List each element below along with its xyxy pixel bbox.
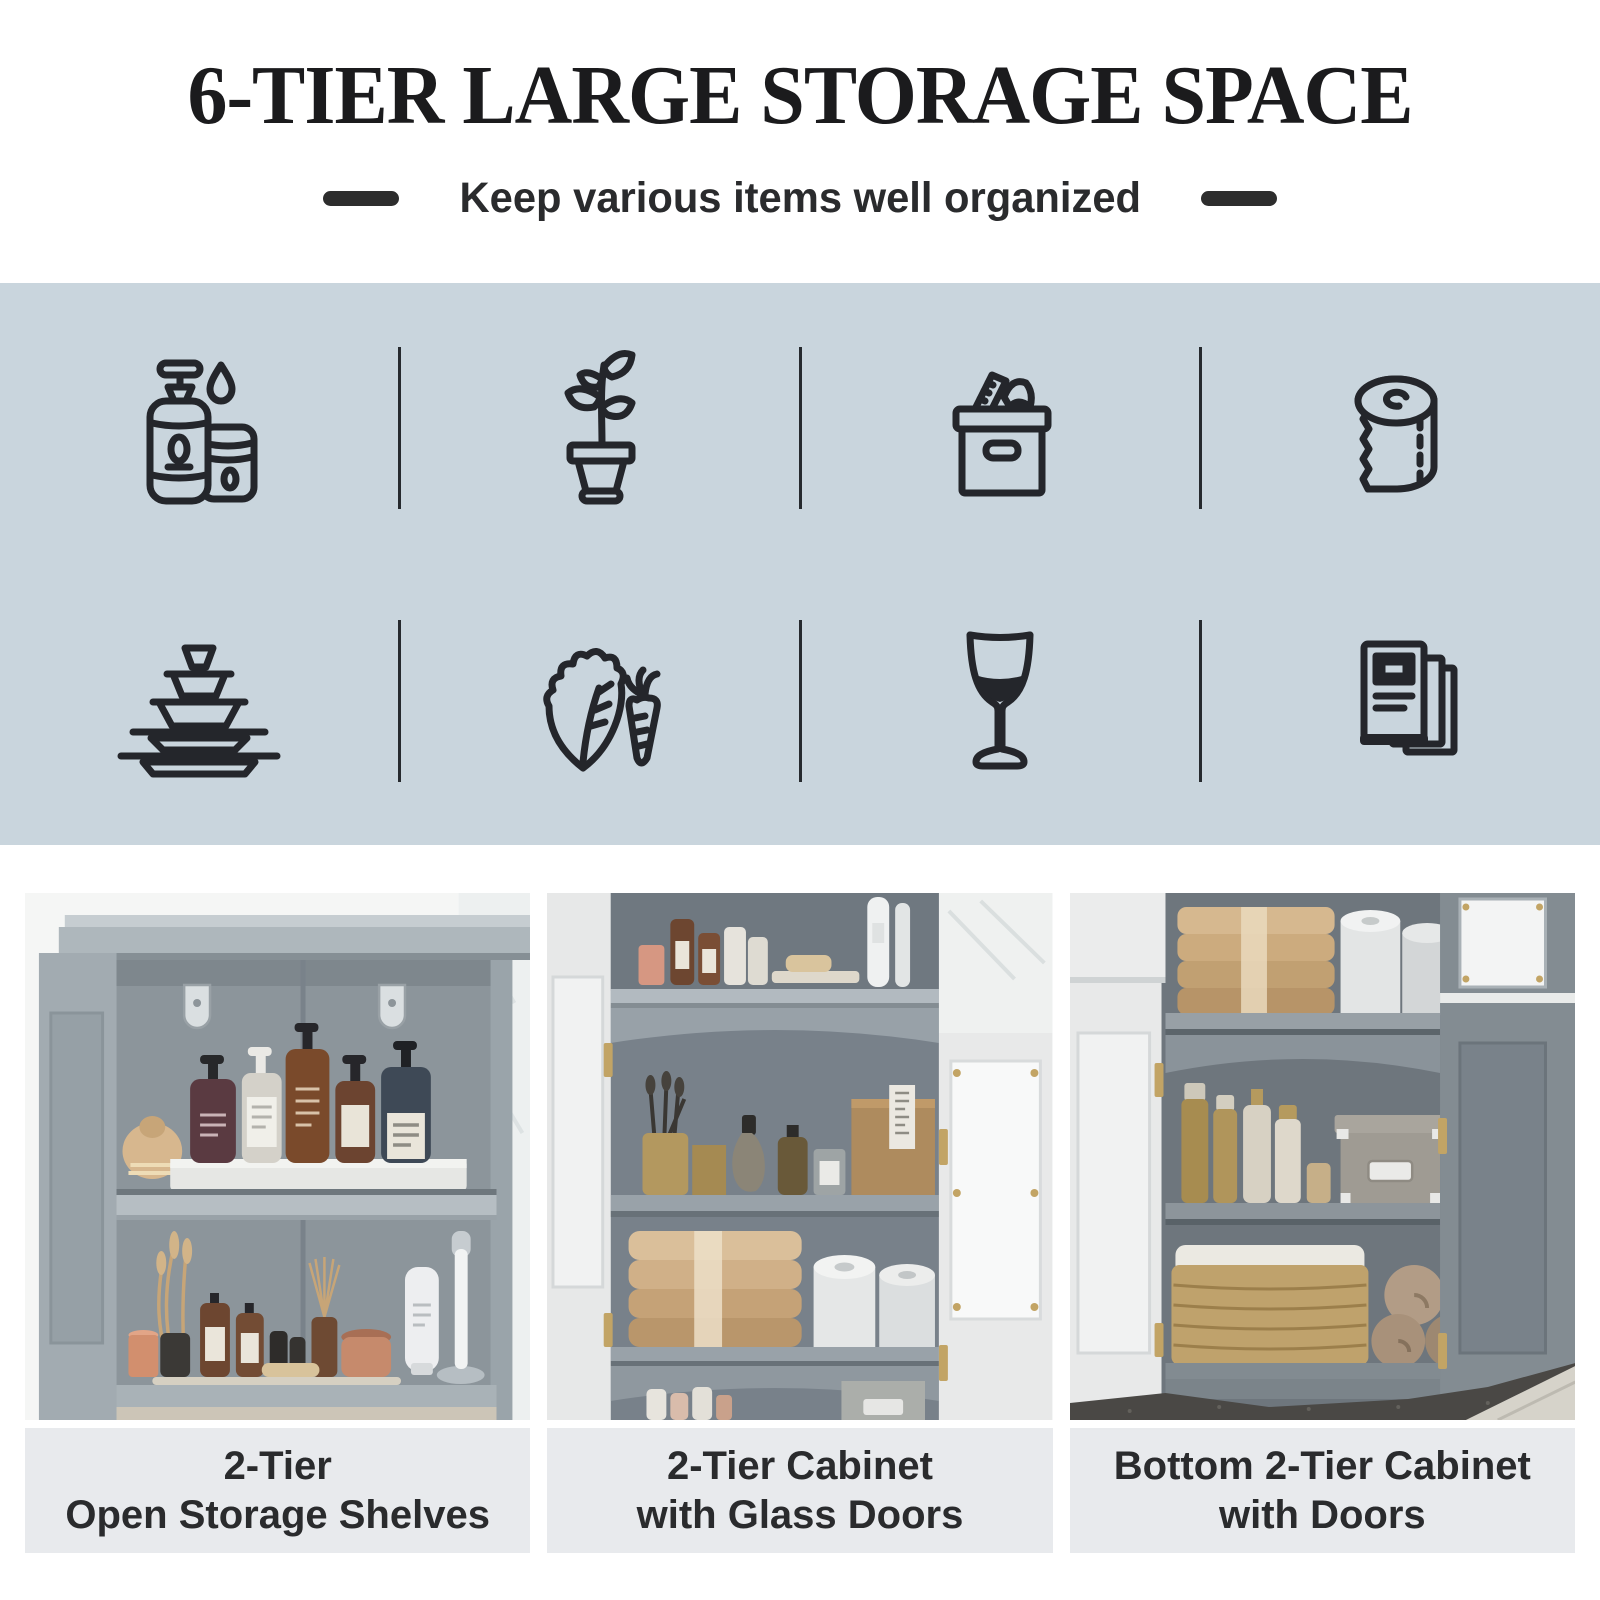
wine-glass-icon [940,623,1060,778]
icon-cell [401,626,799,776]
icon-cell [1202,628,1600,773]
product-feature-page: 6-TIER LARGE STORAGE SPACE Keep various … [0,0,1600,1600]
caption-line-1: 2-Tier Cabinet [667,1442,933,1491]
subtitle-row: Keep various items well organized [0,174,1600,223]
photo-open-storage-shelves [25,893,530,1420]
caption-line-1: 2-Tier [224,1442,332,1491]
caption-box-3: Bottom 2-Tier Cabinet with Doors [1070,1428,1575,1553]
books-icon [1334,628,1469,773]
icon-cell [802,353,1200,503]
caption-line-2: with Glass Doors [637,1491,964,1540]
feature-column-1: 2-Tier Open Storage Shelves [25,893,530,1553]
icon-cell [802,623,1200,778]
caption-box-2: 2-Tier Cabinet with Glass Doors [547,1428,1052,1553]
potted-plant-icon [530,345,670,510]
caption-box-1: 2-Tier Open Storage Shelves [25,1428,530,1553]
dishes-icon [99,618,299,783]
toiletries-icon [124,345,274,510]
feature-photos-row: 2-Tier Open Storage Shelves [0,893,1600,1553]
subtitle-dash-left [323,191,399,206]
icon-row-1 [0,291,1600,564]
icon-row-2 [0,564,1600,837]
header: 6-TIER LARGE STORAGE SPACE Keep various … [0,0,1600,223]
icon-cell [1202,355,1600,500]
icon-cell [0,345,398,510]
paper-roll-icon [1334,355,1469,500]
subtitle-dash-right [1201,191,1277,206]
icon-cell [0,618,398,783]
photo-cabinet-glass-doors [547,893,1052,1420]
storage-box-icon [928,353,1073,503]
caption-line-2: with Doors [1219,1491,1426,1540]
caption-line-2: Open Storage Shelves [65,1491,490,1540]
caption-line-1: Bottom 2-Tier Cabinet [1114,1442,1531,1491]
storable-items-band [0,283,1600,845]
page-subtitle: Keep various items well organized [459,174,1140,223]
vegetables-icon [525,626,675,776]
page-title: 6-TIER LARGE STORAGE SPACE [40,54,1560,138]
feature-column-2: 2-Tier Cabinet with Glass Doors [547,893,1052,1553]
photo-bottom-cabinet-doors [1070,893,1575,1420]
icon-cell [401,345,799,510]
feature-column-3: Bottom 2-Tier Cabinet with Doors [1070,893,1575,1553]
